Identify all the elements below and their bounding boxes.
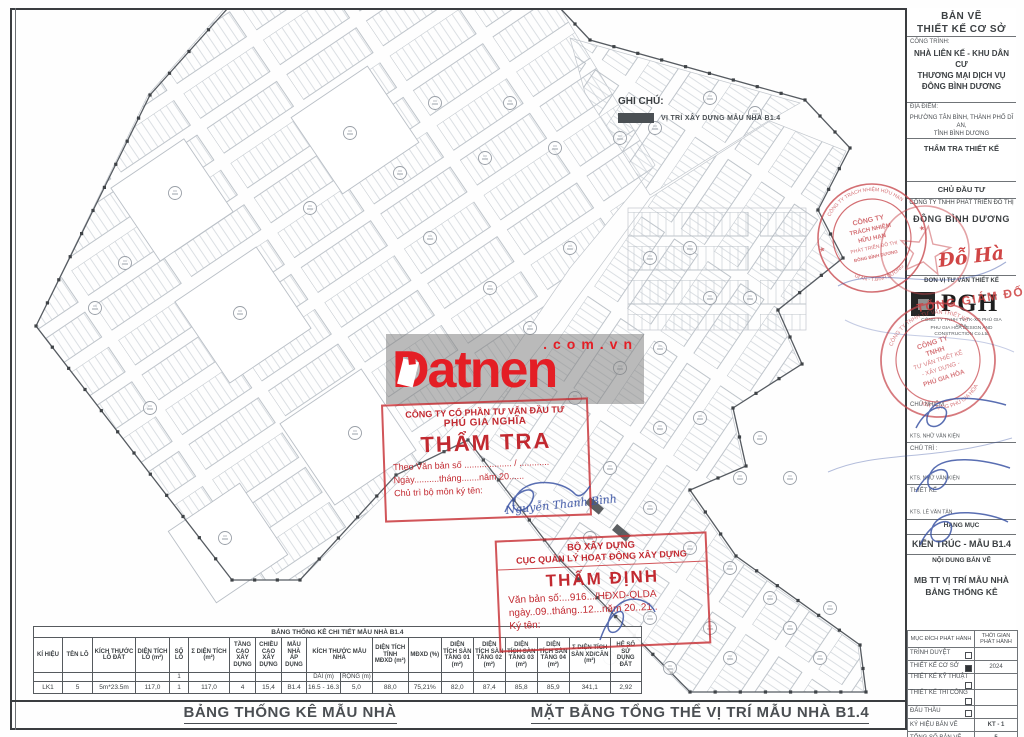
stats-subheader-row: 1 DÀI (m) RỘNG (m) [34,673,642,682]
investor-company-name: ĐÔNG BÌNH DƯƠNG [907,214,1016,224]
tham-tra-stamp: CÔNG TY CỔ PHẦN TƯ VẤN ĐẦU TƯ PHÚ GIA NG… [381,397,592,522]
role-name-chu-nhiem: KTS. NHỮ VĂN KIỆN [910,434,960,439]
map-bottom-divider [10,700,905,702]
issue-row: THIẾT KẾ KỸ THUẬT [908,674,1018,690]
checkbox-checked-icon [965,665,972,672]
total-sheets-row: TỔNG SỐ BẢN VẼ 5 [908,732,1018,737]
checkbox-icon [965,682,972,689]
checkbox-icon [965,698,972,705]
consultant-label: ĐƠN VỊ TƯ VẤN THIẾT KẾ [907,278,1016,284]
title-block: BẢN VẼ THIẾT KẾ CƠ SỞ CÔNG TRÌNH: NHÀ LI… [905,8,1016,730]
legend-item-label: VỊ TRÍ XÂY DỰNG MẪU NHÀ B1.4 [661,115,780,122]
issue-row: ĐẤU THẦU [908,706,1018,719]
issue-row: TRÌNH DUYỆT [908,648,1018,661]
footer-title-right: MẶT BẰNG TỔNG THỂ VỊ TRÍ MẪU NHÀ B1.4 [500,704,900,721]
issue-table: MỤC ĐÍCH PHÁT HÀNH THỜI GIAN PHÁT HÀNH T… [907,630,1018,737]
watermark-suffix: .com.vn [543,336,638,352]
category-label: HẠNG MỤC [907,522,1016,529]
checkbox-icon [965,652,972,659]
category-value: KIẾN TRÚC - MẪU B1.4 [907,539,1016,549]
location-label: ĐỊA ĐIỂM: [910,104,938,110]
project-label: CÔNG TRÌNH: [910,39,950,45]
drawing-code-row: KÝ HIỆU BẢN VẼ KT - 1 [908,719,1018,732]
drawing-frame-inner-line [15,8,16,730]
stamp-title: THẨM TRA [384,426,588,459]
tham-dinh-stamp: BỘ XÂY DỰNG CỤC QUẢN LÝ HOẠT ĐỘNG XÂY DỰ… [495,531,712,652]
content-label: NỘI DUNG BẢN VẼ [907,557,1016,564]
drawing-content: MB TT VỊ TRÍ MẪU NHÀ BẢNG THỐNG KÊ [907,574,1016,598]
issue-row: THIẾT KẾ CƠ SỞ 2024 [908,661,1018,674]
location-text: PHƯỜNG TÂN BÌNH, THÀNH PHỐ DĨ AN, TỈNH B… [907,114,1016,138]
investor-label: CHỦ ĐẦU TƯ [907,185,1016,194]
issue-row: THIẾT KẾ THI CÔNG [908,690,1018,706]
role-name-chu-tri: KTS. NHỮ VĂN KIỆN [910,476,960,481]
legend-title: GHI CHÚ: [618,96,808,107]
role-label-thiet-ke: THIẾT KẾ [910,488,937,494]
project-name: NHÀ LIÊN KẾ - KHU DÂN CƯ THƯƠNG MẠI DỊCH… [907,48,1016,92]
design-review-label: THẨM TRA THIẾT KẾ [907,144,1016,153]
map-legend: GHI CHÚ: VỊ TRÍ XÂY DỰNG MẪU NHÀ B1.4 [618,96,808,123]
datnen-watermark: .com.vn Datnen [386,334,644,404]
consultant-company-line-en: PHU GIA HOA DESIGN AND CONSTRUCTION Co.L… [918,326,1005,337]
footer-title-left: BẢNG THỐNG KÊ MẪU NHÀ [130,704,450,721]
drawing-sheet: GHI CHÚ: VỊ TRÍ XÂY DỰNG MẪU NHÀ B1.4 .c… [0,0,1024,737]
role-label-chu-nhiem: CHỦ NHIỆM [910,402,944,408]
role-name-thiet-ke: KTS. LÊ VĂN TÂN [910,510,952,515]
investor-company-line: CÔNG TY TNHH PHÁT TRIỂN ĐÔ THỊ [907,200,1016,206]
checkbox-icon [965,710,972,717]
sheet-type: BẢN VẼ THIẾT KẾ CƠ SỞ [907,10,1016,36]
legend-swatch [618,113,654,123]
stats-data-row: LK1 5 5m*23.5m 117,0 1 117,0 4 15,4 B1.4… [34,682,642,694]
role-label-chu-tri: CHỦ TRÌ : [910,446,938,452]
